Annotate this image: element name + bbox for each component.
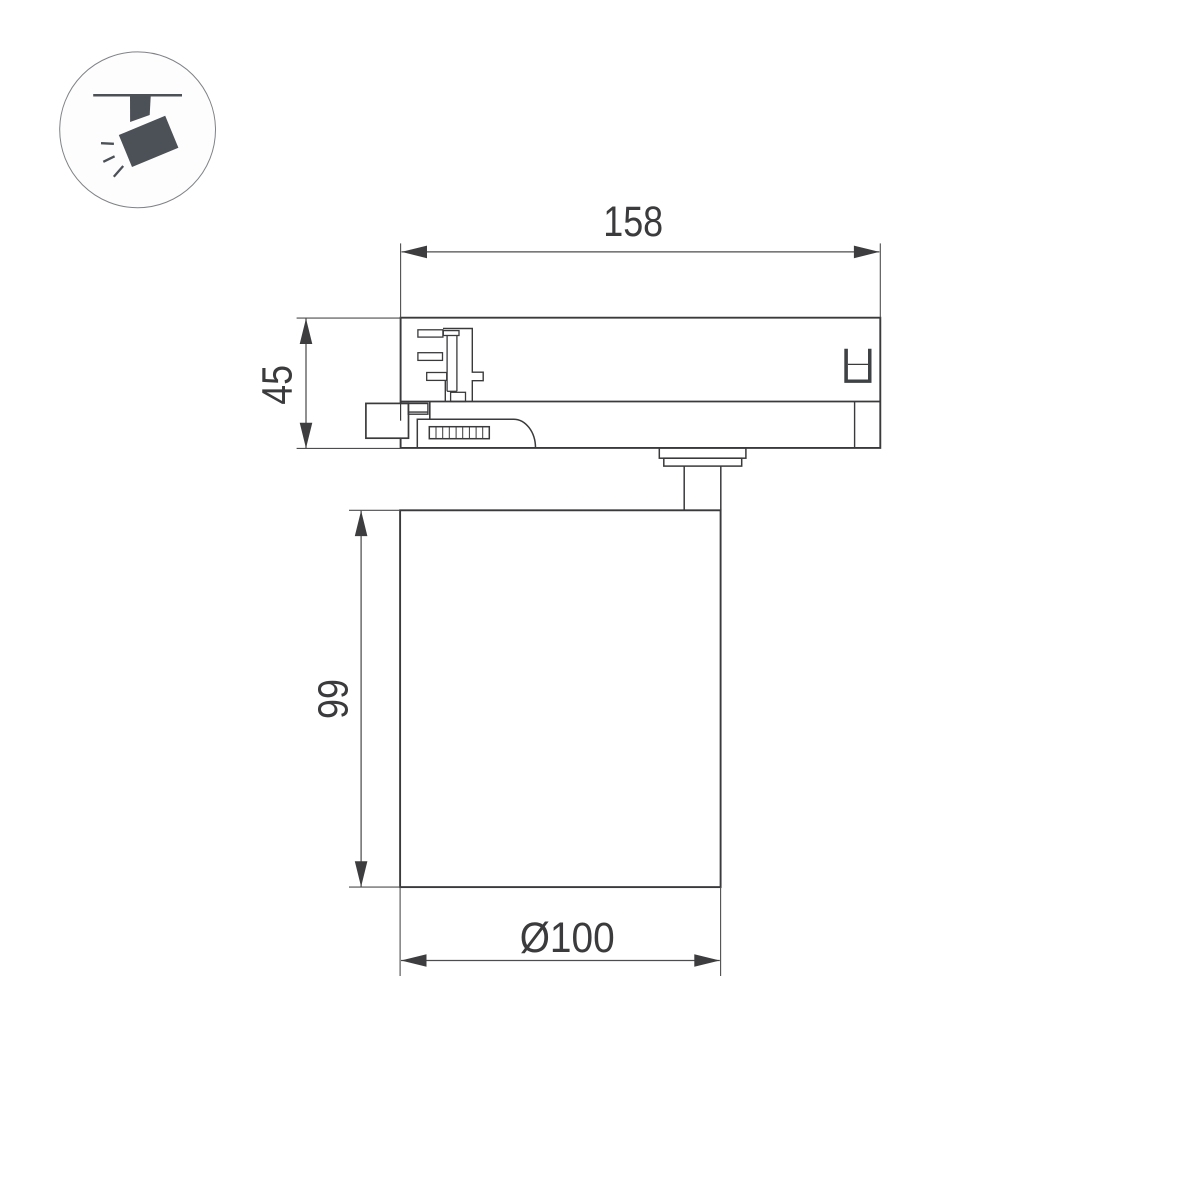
svg-text:158: 158 bbox=[603, 198, 663, 246]
svg-text:99: 99 bbox=[309, 679, 357, 719]
svg-text:Ø100: Ø100 bbox=[520, 914, 615, 962]
svg-text:45: 45 bbox=[253, 365, 301, 405]
